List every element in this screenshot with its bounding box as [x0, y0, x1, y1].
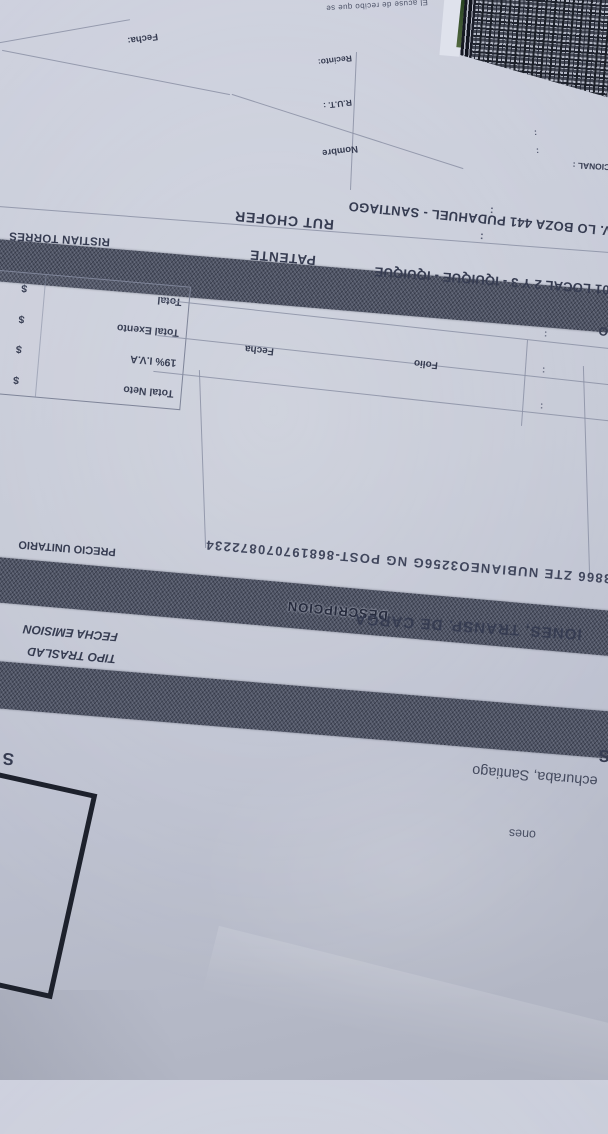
unit-price-header: PRECIO UNITARIO [0, 533, 116, 559]
fecha-receipt-label: Fecha: [109, 27, 159, 52]
opcional-label-fragment: PCIONAL : [552, 156, 608, 174]
letterhead-band [0, 660, 608, 761]
total-label: Total [45, 284, 183, 308]
total-neto-label: Total Neto [37, 375, 175, 399]
corner-shade [0, 990, 240, 1080]
pdf417-stamp-barcode [457, 0, 608, 111]
paper-highlight [150, 700, 608, 1080]
colon-mark: : [544, 328, 548, 339]
colon-mark: : [534, 128, 538, 138]
folio-box-line [153, 371, 608, 423]
fecha-box-label: Fecha [221, 337, 274, 358]
iva-label: 19% I.V.A [39, 345, 177, 369]
currency-sign: $ [0, 332, 41, 366]
currency-sign: $ [3, 271, 47, 305]
rut-document-box [0, 770, 97, 999]
photo-of-upside-down-invoice: { "colors": { "paper": "#c6cad7", "band"… [0, 0, 608, 1080]
folio-box-label: Folio [389, 352, 438, 373]
company-initial-fragment: S [0, 745, 15, 770]
company-initial-fragment: S [591, 741, 608, 768]
legal-text-fragment: El acuse de recibo que se [220, 0, 429, 22]
recinto-label: Recinto: [307, 51, 352, 70]
colon-mark: : [542, 364, 546, 375]
table-column-line [199, 370, 207, 548]
rut-receipt-label: R.U.T. : [311, 96, 352, 115]
table-column-line [583, 366, 591, 576]
colon-mark: : [480, 230, 485, 242]
receipt-box-border-a [2, 50, 230, 96]
origin-address-line: V. LO BOZA 441 PUDAHUEL - SANTIAGO [298, 190, 608, 242]
currency-sign: $ [0, 363, 39, 397]
colon-mark: : [540, 400, 544, 411]
totals-box: Total Neto$ 19% I.V.A$ Total Exento$ Tot… [0, 270, 191, 410]
issuer-city-fragment: echuraba, Santiago [393, 749, 598, 793]
currency-sign: $ [0, 302, 44, 336]
issuer-word-fragment: ones [477, 820, 536, 844]
cut-letter-fragment: O [591, 321, 608, 341]
colon-mark: : [536, 146, 540, 156]
paper-crease [195, 926, 608, 1134]
folio-box-divider [521, 340, 528, 426]
receipt-box-divider [350, 52, 357, 190]
